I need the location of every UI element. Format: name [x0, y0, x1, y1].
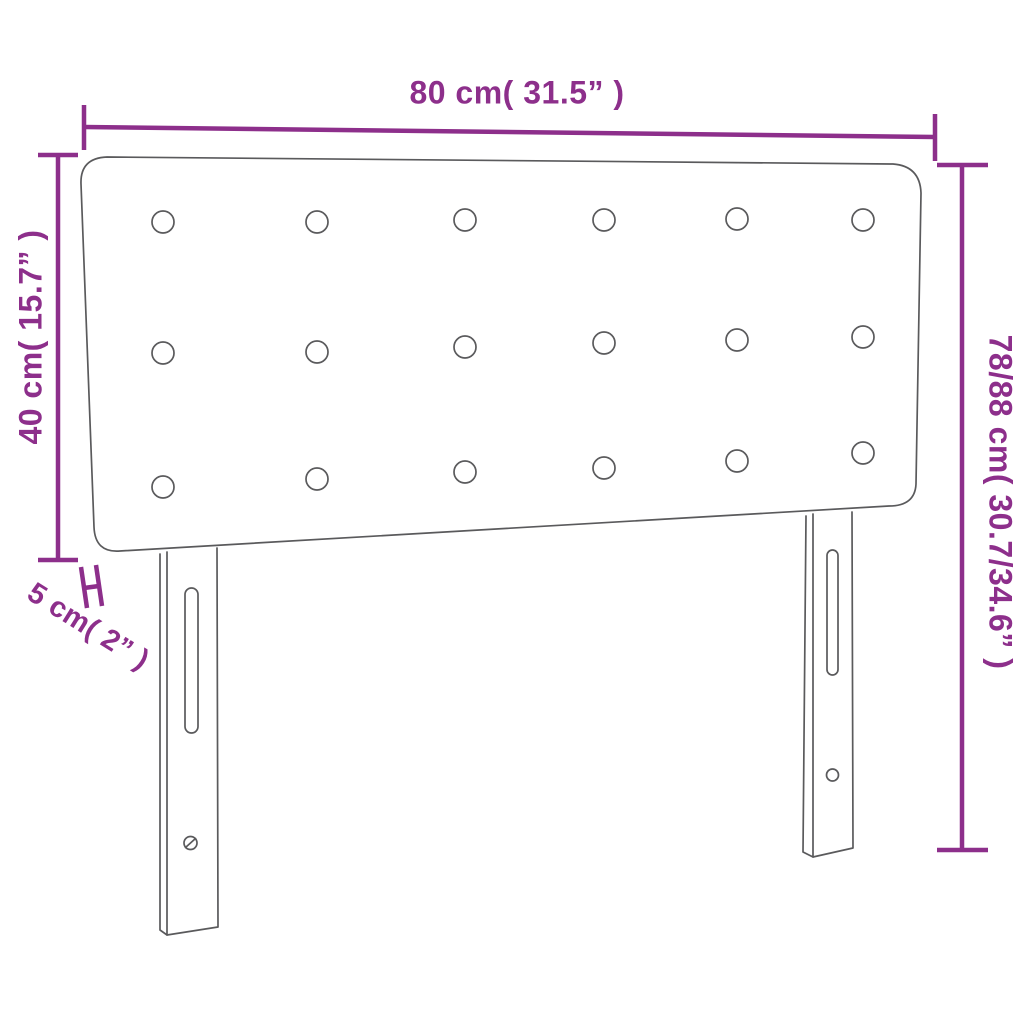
tufting-button — [152, 476, 174, 498]
left-leg-front-face — [167, 548, 218, 935]
right-leg — [803, 512, 853, 857]
tufting-button — [593, 209, 615, 231]
tufting-button — [306, 341, 328, 363]
tufting-buttons — [152, 208, 874, 498]
total-height-dimension-label: 78/88 cm( 30.7/34.6” ) — [982, 335, 1019, 670]
dimension-lines — [38, 105, 988, 850]
total-height-dimension-line — [937, 165, 988, 850]
right-leg-side-face — [803, 514, 813, 857]
headboard-front-panel — [81, 157, 921, 551]
left-leg-slot — [185, 588, 198, 733]
left-leg — [160, 548, 218, 935]
right-leg-screw-hole — [827, 769, 839, 781]
right-leg-front-face — [813, 512, 853, 857]
tufting-button — [852, 209, 874, 231]
width-dimension-line — [84, 105, 935, 161]
left-leg-screw-slot — [186, 839, 196, 848]
tufting-button — [306, 211, 328, 233]
tufting-button — [852, 326, 874, 348]
tufting-button — [152, 342, 174, 364]
tufting-button — [454, 461, 476, 483]
right-leg-slot — [827, 550, 838, 675]
tufting-button — [593, 332, 615, 354]
tufting-button — [454, 336, 476, 358]
tufting-button — [852, 442, 874, 464]
tufting-button — [726, 329, 748, 351]
width-dimension-label: 80 cm( 31.5” ) — [409, 75, 624, 112]
headboard-height-dimension-label: 40 cm( 15.7” ) — [13, 229, 50, 444]
dimension-diagram: 80 cm( 31.5” ) 40 cm( 15.7” ) 78/88 cm( … — [0, 0, 1024, 1024]
thickness-dimension-marker — [81, 565, 102, 608]
tufting-button — [454, 209, 476, 231]
tufting-button — [726, 208, 748, 230]
tufting-button — [726, 450, 748, 472]
left-leg-side-face — [160, 552, 167, 935]
tufting-button — [306, 468, 328, 490]
tufting-button — [152, 211, 174, 233]
tufting-button — [593, 457, 615, 479]
headboard-line-drawing — [0, 0, 1024, 1024]
headboard-outline — [81, 157, 921, 551]
